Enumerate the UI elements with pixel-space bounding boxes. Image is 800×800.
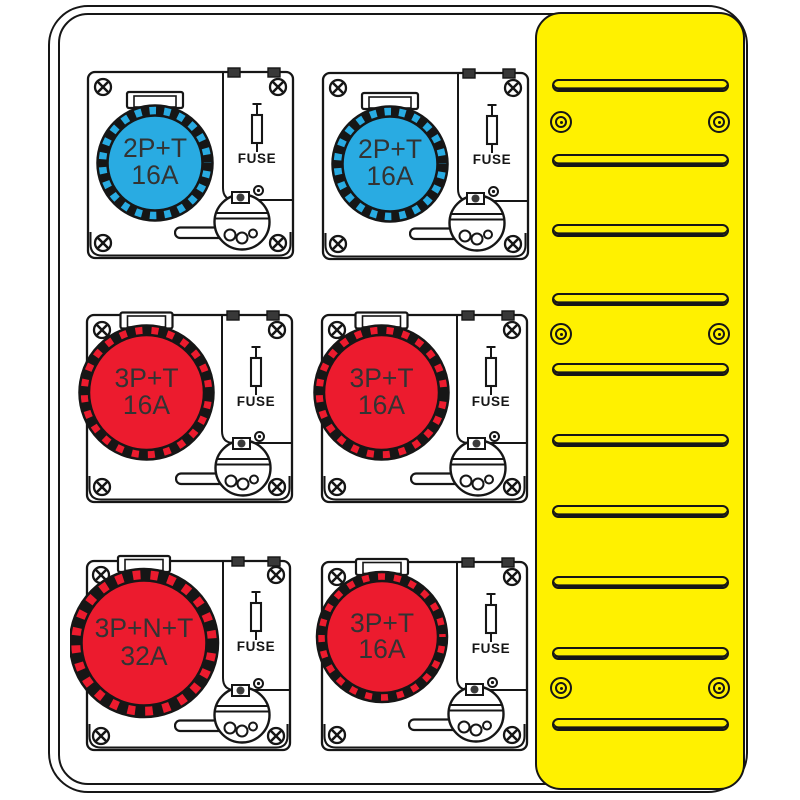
socket-label-line2: 16A — [358, 390, 405, 420]
socket-unit-5: FUSE 3P+N+T 32A — [70, 549, 305, 764]
vent-slot — [552, 224, 729, 237]
mounting-tab — [267, 311, 279, 320]
screw-icon — [329, 569, 345, 585]
screw-icon — [269, 479, 285, 495]
screw-icon — [94, 322, 110, 338]
socket-label-line2: 16A — [358, 634, 405, 664]
fuse-label: FUSE — [472, 641, 510, 656]
screw-icon — [94, 479, 110, 495]
screw-icon — [330, 80, 346, 96]
screw-icon — [269, 322, 285, 338]
vent-slot — [552, 576, 729, 589]
vent-slot — [552, 718, 729, 731]
mounting-tab — [268, 557, 280, 566]
mounting-tab — [503, 69, 515, 78]
fuse-label: FUSE — [238, 151, 276, 166]
vent-slot — [552, 79, 729, 92]
screw-icon — [504, 479, 520, 495]
enclosure-drawing: FUSE 2P+T 16A FUSE 2P+T 16A — [0, 0, 800, 800]
screw-icon — [95, 79, 111, 95]
screw-icon — [504, 569, 520, 585]
vent-slot — [552, 154, 729, 167]
screw-icon — [505, 236, 521, 252]
vent-slot — [552, 363, 729, 376]
mounting-tab — [463, 69, 475, 78]
socket-unit-3: FUSE 3P+T 16A — [77, 303, 305, 515]
screw-icon — [329, 479, 345, 495]
vent-slot — [552, 434, 729, 447]
cap-screw-icon — [708, 111, 730, 133]
socket-label-line1: 2P+T — [358, 134, 422, 164]
socket-label-line1: 2P+T — [123, 133, 187, 163]
vent-cover-panel — [535, 12, 745, 790]
screw-icon — [93, 728, 109, 744]
socket-label-line2: 16A — [131, 160, 178, 190]
mounting-tab — [462, 558, 474, 567]
cap-screw-icon — [708, 323, 730, 345]
fuse-label: FUSE — [237, 394, 275, 409]
screw-icon — [95, 235, 111, 251]
cap-screw-icon — [550, 677, 572, 699]
socket-unit-4: FUSE 3P+T 16A — [312, 303, 540, 515]
socket-label-line1: 3P+T — [349, 363, 413, 393]
mounting-tab — [232, 557, 244, 566]
cap-screw-icon — [708, 677, 730, 699]
socket-label-line1: 3P+T — [114, 363, 178, 393]
socket-label-line2: 16A — [123, 390, 170, 420]
fuse-label: FUSE — [472, 394, 510, 409]
mounting-tab — [227, 311, 239, 320]
screw-icon — [268, 567, 284, 583]
screw-icon — [329, 727, 345, 743]
screw-icon — [330, 236, 346, 252]
fuse-label: FUSE — [473, 152, 511, 167]
screw-icon — [504, 322, 520, 338]
socket-label-line2: 32A — [120, 641, 167, 671]
mounting-tab — [228, 68, 240, 77]
mounting-tab — [502, 311, 514, 320]
cap-screw-icon — [550, 111, 572, 133]
socket-unit-6: FUSE 3P+T 16A — [312, 550, 540, 762]
vent-slot — [552, 293, 729, 306]
socket-unit-1: FUSE 2P+T 16A — [78, 60, 306, 270]
mounting-tab — [502, 558, 514, 567]
vent-slot — [552, 505, 729, 518]
screw-icon — [505, 80, 521, 96]
fuse-label: FUSE — [237, 639, 275, 654]
socket-label-line1: 3P+N+T — [95, 613, 194, 643]
socket-unit-2: FUSE 2P+T 16A — [313, 61, 541, 271]
cap-screw-icon — [550, 323, 572, 345]
vent-slot — [552, 647, 729, 660]
mounting-tab — [462, 311, 474, 320]
screw-icon — [504, 727, 520, 743]
screw-icon — [270, 79, 286, 95]
screw-icon — [270, 235, 286, 251]
mounting-tab — [268, 68, 280, 77]
screw-icon — [329, 322, 345, 338]
socket-label-line2: 16A — [366, 161, 413, 191]
screw-icon — [268, 728, 284, 744]
